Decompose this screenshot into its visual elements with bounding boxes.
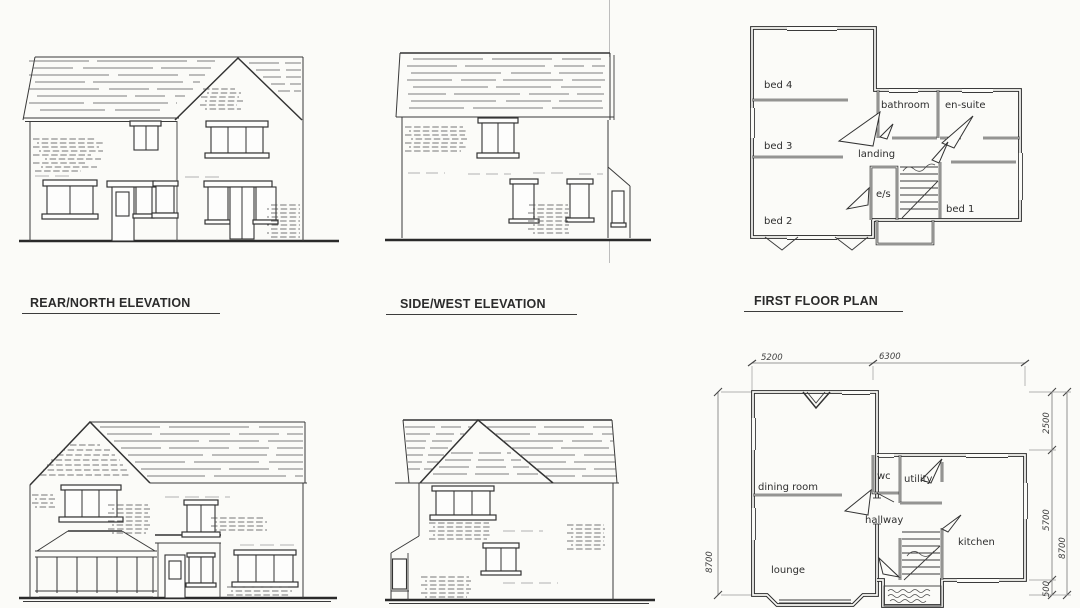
dim-right-bottom: 500 <box>1042 581 1052 597</box>
rear-roof <box>23 57 303 122</box>
room-label-wc: wc <box>877 471 891 482</box>
dim-width-right: 6300 <box>879 352 901 362</box>
dim-right-middle: 5700 <box>1042 509 1052 531</box>
gfp-note-box <box>884 586 941 606</box>
front-conservatory <box>35 531 157 597</box>
ground-floor-plan-drawing: 5200 6300 2500 5700 500 8700 8700 <box>695 350 1080 608</box>
room-label-es: e/s <box>876 189 891 200</box>
room-label-bed2: bed 2 <box>764 216 792 227</box>
room-label-bed3: bed 3 <box>764 141 792 152</box>
ffp-room-labels: bed 4 bed 3 bed 2 bathroom en-suite land… <box>764 80 986 227</box>
east-windows <box>430 486 521 575</box>
east-roof <box>395 420 619 483</box>
front-porch <box>155 535 221 598</box>
side-east-elevation-drawing <box>383 403 660 608</box>
dim-left-total: 8700 <box>705 551 715 573</box>
dim-right-total: 8700 <box>1058 537 1068 559</box>
room-label-hallway: hallway <box>865 515 903 526</box>
room-label-kitchen: kitchen <box>958 537 995 548</box>
front-south-elevation-drawing <box>15 405 350 608</box>
dim-width-left: 5200 <box>761 353 783 363</box>
rear-windows <box>42 121 278 241</box>
architectural-plan-sheet: bed 4 bed 3 bed 2 bathroom en-suite land… <box>0 0 1080 608</box>
title-rear-north-elevation: REAR/NORTH ELEVATION <box>22 296 220 314</box>
room-label-landing: landing <box>858 149 895 160</box>
room-label-bathroom: bathroom <box>881 100 930 111</box>
side-west-elevation-drawing <box>383 45 655 250</box>
side-lean-to <box>608 167 630 238</box>
ffp-door-swings <box>839 112 973 209</box>
side-roof <box>396 53 614 120</box>
room-label-bed4: bed 4 <box>764 80 792 91</box>
first-floor-plan-drawing: bed 4 bed 3 bed 2 bathroom en-suite land… <box>740 15 1080 285</box>
gfp-stairs <box>902 532 940 580</box>
title-side-west-elevation: SIDE/WEST ELEVATION <box>386 297 577 315</box>
front-roof <box>30 422 307 485</box>
side-windows <box>477 118 594 223</box>
rear-north-elevation-drawing <box>15 45 350 250</box>
room-label-utility: utility <box>904 474 933 485</box>
room-label-lounge: lounge <box>771 565 805 576</box>
room-label-dining-room: dining room <box>758 482 818 493</box>
title-first-floor-plan: FIRST FLOOR PLAN <box>744 294 903 312</box>
east-porch <box>391 536 419 600</box>
dim-right-top: 2500 <box>1042 412 1052 434</box>
room-label-bed1: bed 1 <box>946 204 974 215</box>
room-label-ensuite: en-suite <box>945 100 986 111</box>
ffp-stairs <box>900 164 938 218</box>
